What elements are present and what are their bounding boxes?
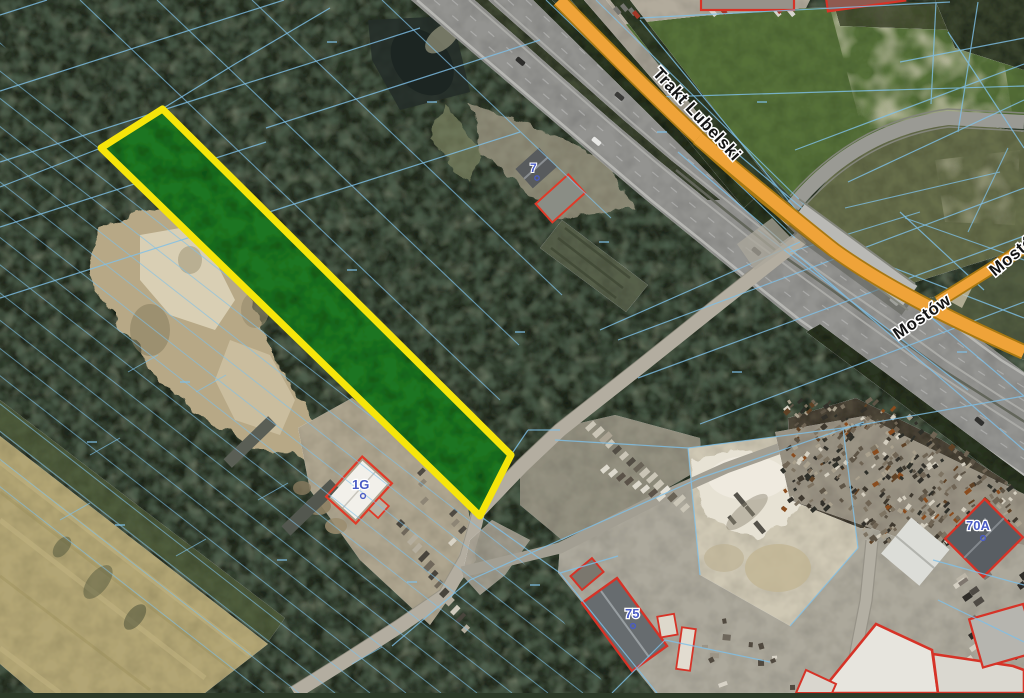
svg-text:1G: 1G	[352, 477, 369, 492]
svg-text:75: 75	[625, 606, 639, 621]
svg-text:7: 7	[530, 161, 537, 175]
svg-text:70A: 70A	[966, 518, 990, 533]
